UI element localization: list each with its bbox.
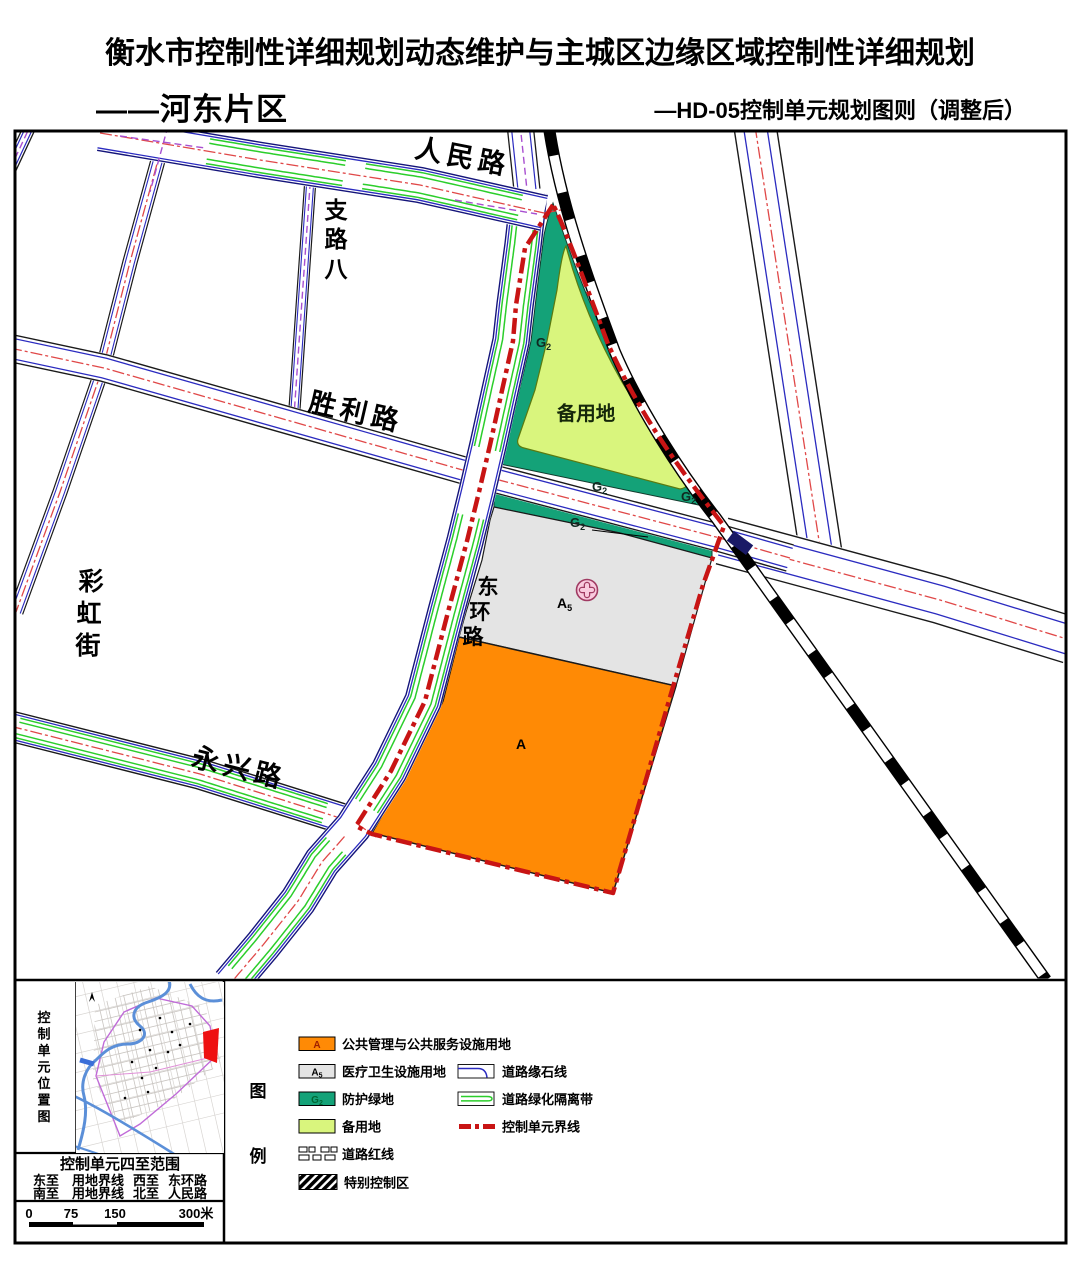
svg-text:置: 置 <box>37 1093 50 1108</box>
svg-text:图: 图 <box>37 1109 50 1124</box>
svg-text:元: 元 <box>37 1060 50 1075</box>
svg-text:位: 位 <box>37 1076 50 1091</box>
svg-text:支: 支 <box>324 197 349 223</box>
svg-text:路: 路 <box>463 625 485 649</box>
svg-text:路: 路 <box>325 226 349 252</box>
svg-text:公共管理与公共服务设施用地: 公共管理与公共服务设施用地 <box>342 1037 511 1052</box>
svg-text:环: 环 <box>470 601 491 624</box>
svg-text:南至: 南至 <box>33 1186 59 1201</box>
svg-text:人民路: 人民路 <box>168 1186 208 1201</box>
svg-text:八: 八 <box>325 256 349 282</box>
svg-text:街: 街 <box>74 631 100 660</box>
svg-text:北至: 北至 <box>133 1186 159 1201</box>
svg-text:道路绿化隔离带: 道路绿化隔离带 <box>502 1092 593 1107</box>
svg-text:医疗卫生设施用地: 医疗卫生设施用地 <box>342 1065 446 1080</box>
svg-text:东: 东 <box>478 575 499 599</box>
svg-text:A: A <box>313 1040 320 1051</box>
svg-text:300米: 300米 <box>179 1206 215 1221</box>
svg-text:控: 控 <box>37 1010 50 1025</box>
svg-text:道路缘石线: 道路缘石线 <box>502 1065 567 1080</box>
svg-text:控制单元界线: 控制单元界线 <box>502 1120 580 1135</box>
svg-text:75: 75 <box>64 1206 78 1221</box>
svg-text:150: 150 <box>104 1206 126 1221</box>
svg-text:图: 图 <box>250 1082 267 1101</box>
svg-text:特别控制区: 特别控制区 <box>344 1176 409 1191</box>
svg-text:用地界线: 用地界线 <box>71 1186 124 1201</box>
svg-text:0: 0 <box>25 1206 32 1221</box>
svg-text:虹: 虹 <box>76 600 101 628</box>
svg-text:防护绿地: 防护绿地 <box>342 1092 394 1107</box>
svg-text:例: 例 <box>250 1146 267 1166</box>
svg-text:A: A <box>516 736 526 752</box>
svg-text:道路红线: 道路红线 <box>342 1147 394 1162</box>
svg-text:控制单元四至范围: 控制单元四至范围 <box>60 1155 180 1173</box>
svg-text:彩: 彩 <box>78 568 103 596</box>
svg-text:单: 单 <box>37 1043 50 1058</box>
svg-text:制: 制 <box>37 1027 50 1042</box>
svg-text:备用地: 备用地 <box>341 1120 381 1135</box>
svg-text:备用地: 备用地 <box>556 402 616 425</box>
